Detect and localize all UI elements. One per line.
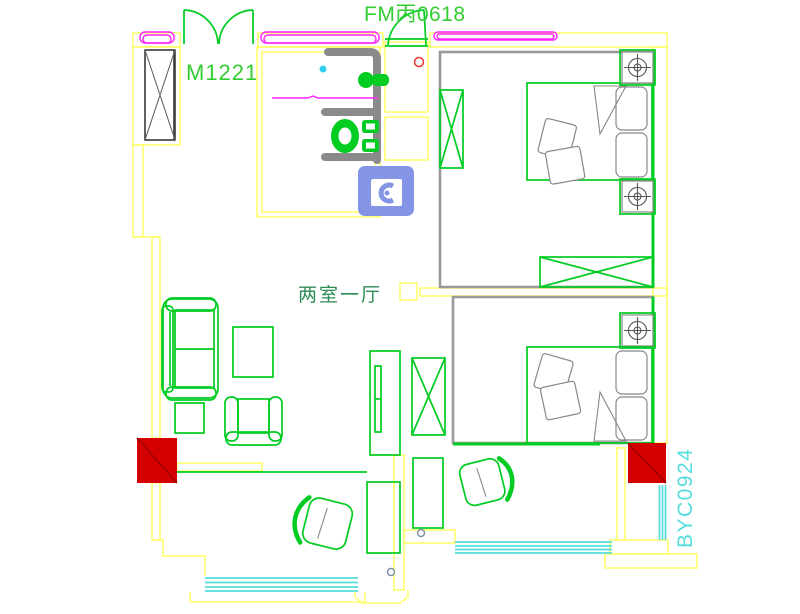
office-chair-2 [458,454,517,509]
floor-plan-page: 两室一厅 [0,0,800,614]
wardrobe-2 [540,257,653,287]
door-knob-2 [388,569,395,576]
column-left [137,438,177,483]
window-south-right [455,542,612,553]
desk-1 [367,482,400,553]
armchair [225,397,282,445]
nightstand-1 [620,50,655,85]
window-south-left [205,578,358,591]
bed-1 [527,83,652,184]
nightstand-2 [620,179,655,214]
nightstand-3 [620,313,655,348]
bedroom-2 [412,297,655,444]
coffee-table [233,327,273,377]
counter-edge-line [272,96,378,98]
shaft-column [145,50,175,140]
side-table [175,403,204,433]
wardrobe-1 [440,90,463,168]
floor-drain-dot [320,66,327,73]
entry-double-door [184,10,253,44]
column-right [628,443,666,483]
vent-circle [415,58,424,67]
washing-machine [358,166,414,216]
study-area [177,454,517,575]
toilet [331,119,379,153]
window-east-balcony [660,485,666,540]
floor-plan-canvas[interactable]: 两室一厅 [0,0,800,614]
office-chair-1 [290,493,355,553]
bedroom-1 [440,50,655,287]
wardrobe-3 [412,358,445,435]
bed-2 [527,347,652,443]
entry-door-label: M1221 [186,60,258,85]
door-knob-1 [418,530,425,537]
living-room [162,298,400,455]
tv-cabinet [370,351,400,455]
desk-2 [413,458,443,528]
fire-door-label: FM丙0618 [364,3,466,26]
sofa [162,298,218,400]
room-type-label: 两室一厅 [298,284,382,306]
window-code-label: BYC0924 [674,448,697,548]
